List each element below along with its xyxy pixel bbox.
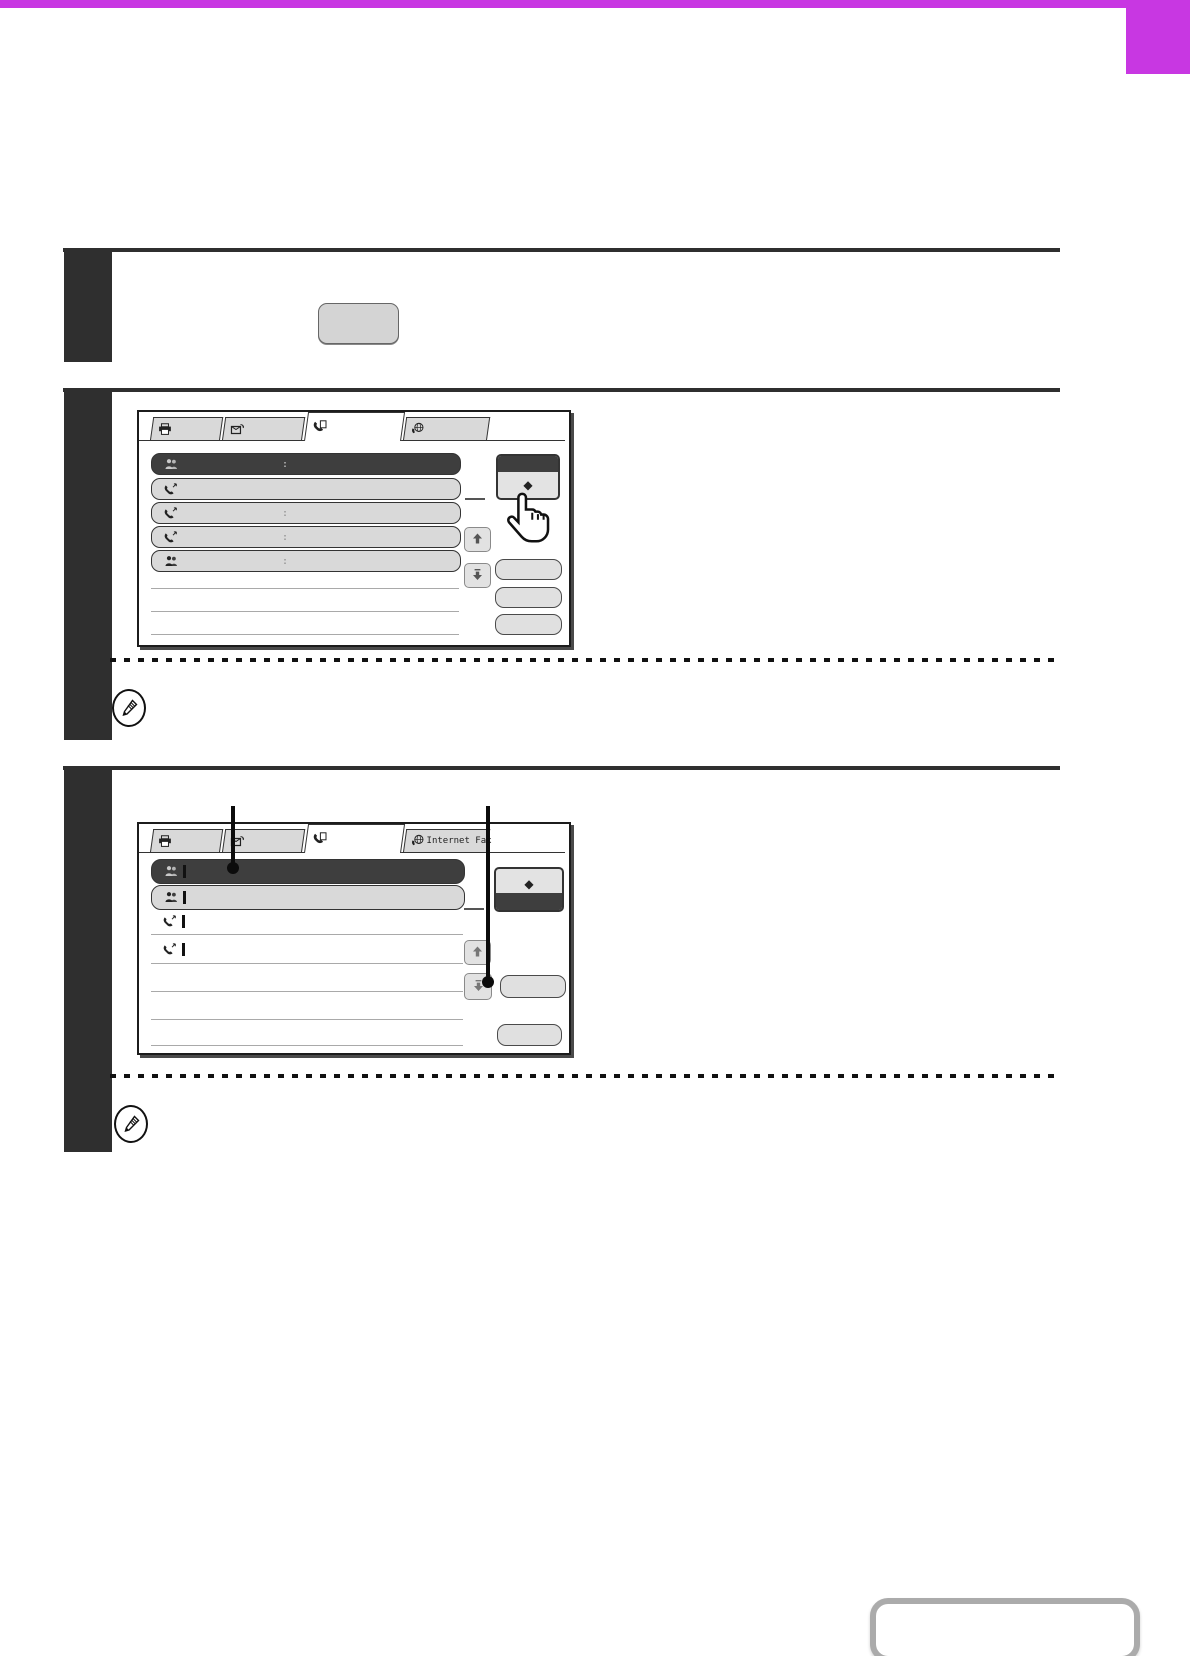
fax-contact-icon	[164, 507, 178, 519]
callout-dot-1	[227, 862, 239, 874]
callout-line-2	[486, 806, 490, 982]
dashed-separator	[110, 658, 1060, 662]
text-remnant-bar	[183, 891, 186, 904]
fax-contact-icon	[164, 483, 178, 495]
side-button-3[interactable]	[495, 614, 562, 635]
text-remnant-bar	[183, 865, 186, 878]
tab-label: Internet Fax	[427, 836, 492, 846]
side-button-1[interactable]	[500, 975, 566, 998]
text-remnant-bar	[182, 943, 185, 956]
text-remnant-bar	[182, 915, 185, 928]
list-line	[151, 934, 463, 935]
manual-page: : : : :	[0, 0, 1190, 1656]
sort-dark-band	[496, 893, 562, 910]
footer-nav-button[interactable]	[870, 1598, 1140, 1656]
up-arrow-icon	[471, 530, 484, 549]
printer-icon	[159, 420, 172, 439]
scroll-down-button[interactable]	[464, 563, 491, 588]
document-send-icon	[231, 420, 245, 439]
internet-fax-icon	[412, 420, 425, 439]
side-button-2[interactable]	[497, 1024, 562, 1046]
accent-corner-block	[1126, 0, 1190, 74]
address-key[interactable]	[151, 478, 461, 500]
address-key[interactable]: :	[151, 526, 461, 548]
step1-number-block	[64, 248, 112, 362]
tab-fax-selected[interactable]	[304, 824, 405, 853]
side-button-2[interactable]	[495, 587, 562, 608]
accent-horizontal-bar	[0, 0, 1190, 8]
list-line	[151, 991, 463, 992]
row-divider: :	[282, 556, 288, 567]
row-divider: :	[282, 459, 288, 470]
sort-diamond-icon: ◆	[498, 478, 558, 492]
fax-icon	[313, 418, 327, 437]
address-entry[interactable]	[163, 912, 185, 931]
scroll-up-button[interactable]	[464, 527, 491, 552]
fax-icon	[313, 830, 327, 849]
step2-number-block	[64, 388, 112, 740]
tab-internet-fax[interactable]	[403, 417, 490, 440]
step3-number-block	[64, 766, 112, 1152]
empty-list-line	[151, 611, 459, 612]
group-contact-icon	[164, 555, 178, 568]
empty-list-line	[151, 634, 459, 635]
printer-icon	[159, 832, 172, 851]
group-contact-icon	[164, 891, 178, 904]
tab-internet-fax[interactable]: Internet Fax	[403, 829, 490, 852]
list-line	[151, 1045, 463, 1046]
sort-dark-band	[498, 456, 558, 472]
dashed-separator	[110, 1074, 1060, 1078]
group-contact-icon	[164, 458, 178, 471]
address-key[interactable]: :	[151, 502, 461, 524]
tab-copy[interactable]	[150, 829, 223, 852]
tab-fax-selected[interactable]	[304, 412, 405, 441]
tab-document-filing[interactable]	[222, 417, 305, 440]
address-key-selected[interactable]	[151, 859, 465, 884]
list-separator-dash	[464, 908, 484, 910]
list-separator-dash	[465, 498, 485, 500]
pencil-note-icon	[114, 1105, 148, 1143]
touch-panel-screenshot-1: : : : :	[137, 410, 571, 647]
callout-dot-2	[482, 976, 494, 988]
address-key-selected[interactable]: :	[151, 453, 461, 475]
touch-panel-screenshot-2: Internet Fax	[137, 822, 571, 1055]
list-line	[151, 963, 463, 964]
step3-rule	[63, 766, 1060, 770]
list-line	[151, 1019, 463, 1020]
row-divider: :	[282, 508, 288, 519]
address-key[interactable]	[151, 885, 465, 910]
row-divider: :	[282, 532, 288, 543]
address-entry[interactable]	[163, 940, 185, 959]
sort-toggle-key[interactable]: ◆	[494, 867, 564, 912]
step1-key-button[interactable]	[318, 303, 399, 344]
empty-list-line	[151, 588, 459, 589]
group-contact-icon	[164, 865, 178, 878]
step1-rule	[63, 248, 1060, 252]
internet-fax-icon	[412, 832, 425, 851]
down-arrow-icon	[471, 566, 484, 585]
side-button-1[interactable]	[495, 559, 562, 580]
fax-contact-icon	[163, 912, 177, 931]
sort-diamond-icon: ◆	[496, 877, 562, 891]
fax-contact-icon	[164, 531, 178, 543]
pointing-hand-cursor	[505, 492, 557, 554]
step2-rule	[63, 388, 1060, 392]
tab-copy[interactable]	[150, 417, 223, 440]
address-key[interactable]: :	[151, 550, 461, 572]
up-arrow-icon	[471, 943, 484, 962]
pencil-note-icon	[112, 689, 146, 727]
callout-line-1	[231, 806, 235, 868]
fax-contact-icon	[163, 940, 177, 959]
